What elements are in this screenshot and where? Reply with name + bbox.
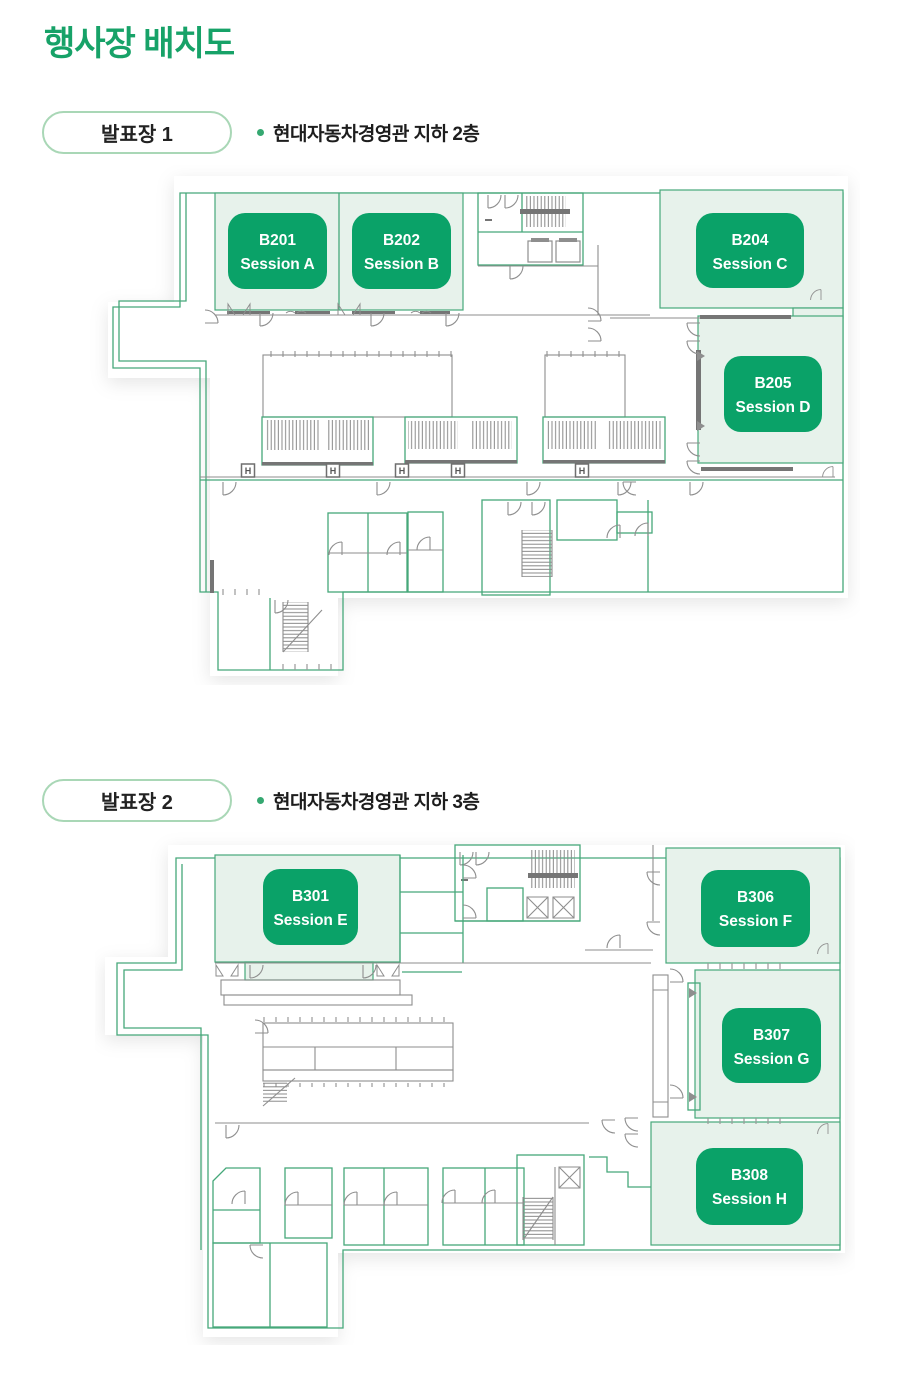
svg-text:H: H <box>330 466 337 476</box>
svg-text:B307: B307 <box>753 1027 790 1044</box>
svg-text:B202: B202 <box>383 232 420 249</box>
room-badge-b201: B201 Session A <box>228 213 327 289</box>
svg-text:Session H: Session H <box>712 1191 787 1208</box>
section1-pill: 발표장 1 <box>42 111 232 154</box>
svg-text:Session E: Session E <box>273 912 347 929</box>
svg-text:Session D: Session D <box>736 399 811 416</box>
svg-text:Session A: Session A <box>240 256 314 273</box>
svg-text:Session F: Session F <box>719 913 792 930</box>
section2-pill: 발표장 2 <box>42 779 232 822</box>
svg-text:B301: B301 <box>292 888 329 905</box>
svg-text:Session C: Session C <box>713 256 788 273</box>
svg-text:H: H <box>579 466 586 476</box>
page-title: 행사장 배치도 <box>44 16 234 65</box>
room-badge-b205: B205 Session D <box>724 356 822 432</box>
floor-plan-basement2: H H H H H B201 Session A B202 Session B … <box>90 165 860 685</box>
room-area-b301-ext <box>245 962 373 980</box>
wall-marker-h3: H <box>396 464 409 477</box>
wall-marker-h5: H <box>576 464 589 477</box>
room-badge-b202: B202 Session B <box>352 213 451 289</box>
room-badge-b301: B301 Session E <box>263 869 358 945</box>
svg-text:B205: B205 <box>754 375 791 392</box>
wall-marker-h2: H <box>327 464 340 477</box>
svg-text:H: H <box>455 466 462 476</box>
room-badge-b308: B308 Session H <box>696 1148 803 1225</box>
section1-location: 현대자동차경영관 지하 2층 <box>273 119 479 146</box>
svg-text:B308: B308 <box>731 1167 768 1184</box>
bullet-icon <box>257 129 264 136</box>
room-badge-b204: B204 Session C <box>696 213 804 288</box>
wall-marker-h4: H <box>452 464 465 477</box>
svg-text:Session G: Session G <box>734 1051 810 1068</box>
bullet-icon <box>257 797 264 804</box>
svg-text:B204: B204 <box>731 232 768 249</box>
section2-header: 발표장 2 현대자동차경영관 지하 3층 <box>42 779 479 822</box>
svg-text:Session B: Session B <box>364 256 439 273</box>
wall-marker-h1: H <box>242 464 255 477</box>
room-badge-b306: B306 Session F <box>701 870 810 947</box>
svg-text:B306: B306 <box>737 889 774 906</box>
section1-header: 발표장 1 현대자동차경영관 지하 2층 <box>42 111 479 154</box>
room-badge-b307: B307 Session G <box>722 1008 821 1083</box>
svg-text:H: H <box>245 466 252 476</box>
section2-location: 현대자동차경영관 지하 3층 <box>273 787 479 814</box>
floor-plan-basement3: B301 Session E B306 Session F B307 Sessi… <box>95 830 855 1345</box>
svg-text:B201: B201 <box>259 232 296 249</box>
svg-text:H: H <box>399 466 406 476</box>
